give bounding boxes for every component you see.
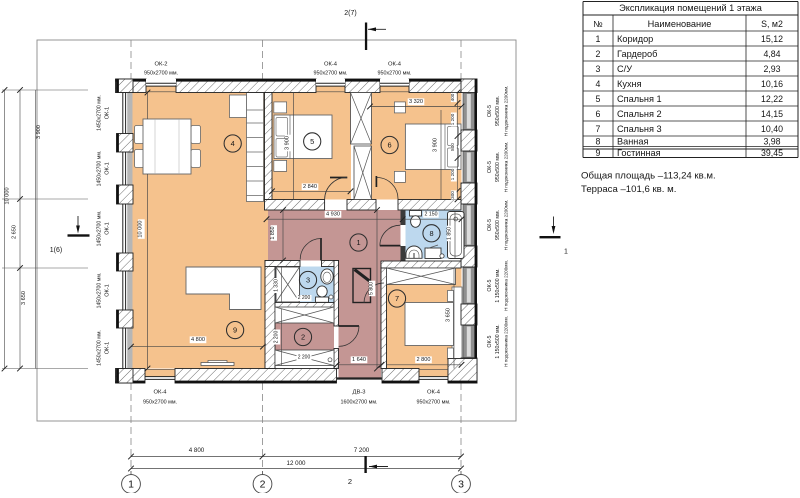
- svg-text:Н подоконника 2200мм.: Н подоконника 2200мм.: [504, 86, 509, 137]
- svg-text:ОК-5: ОК-5: [487, 105, 493, 117]
- svg-text:10 000: 10 000: [138, 220, 144, 237]
- svg-text:3 900: 3 900: [433, 138, 439, 152]
- svg-text:2 200: 2 200: [298, 355, 311, 361]
- svg-text:1 200: 1 200: [450, 113, 455, 125]
- svg-text:2 800: 2 800: [417, 357, 431, 363]
- svg-text:4 800: 4 800: [191, 337, 205, 343]
- svg-text:2: 2: [260, 479, 266, 491]
- svg-text:S, м2: S, м2: [761, 19, 783, 29]
- svg-text:1600х2700 мм.: 1600х2700 мм.: [340, 400, 377, 406]
- svg-text:3: 3: [306, 276, 310, 285]
- svg-text:ОК-4: ОК-4: [153, 390, 167, 396]
- svg-text:3 650: 3 650: [21, 291, 27, 305]
- svg-text:Спальня 2: Спальня 2: [617, 109, 662, 119]
- svg-text:1450х2700 мм.: 1450х2700 мм.: [97, 211, 103, 247]
- svg-text:39,45: 39,45: [761, 148, 783, 158]
- svg-text:5: 5: [596, 94, 601, 104]
- svg-text:9: 9: [596, 148, 601, 158]
- svg-text:Спальня 3: Спальня 3: [617, 124, 662, 134]
- svg-text:№: №: [593, 19, 602, 29]
- svg-text:Спальня 1: Спальня 1: [617, 94, 662, 104]
- svg-text:ОК-1: ОК-1: [105, 284, 111, 297]
- svg-text:9: 9: [233, 326, 237, 335]
- svg-text:4 800: 4 800: [189, 447, 205, 454]
- svg-text:2: 2: [596, 49, 601, 59]
- svg-text:2 840: 2 840: [303, 184, 317, 190]
- svg-text:Н подоконника 2200мм.: Н подоконника 2200мм.: [504, 316, 509, 367]
- svg-text:15,12: 15,12: [761, 34, 783, 44]
- svg-text:3 900: 3 900: [36, 125, 42, 139]
- svg-text:1(6): 1(6): [50, 247, 62, 254]
- svg-text:ОК-2: ОК-2: [154, 62, 167, 68]
- svg-text:400: 400: [450, 93, 455, 101]
- svg-text:4 930: 4 930: [326, 212, 340, 218]
- svg-text:5: 5: [310, 137, 314, 146]
- svg-text:14,15: 14,15: [761, 109, 783, 119]
- svg-text:3 900: 3 900: [285, 136, 291, 150]
- svg-text:300: 300: [450, 191, 455, 199]
- svg-text:1: 1: [356, 238, 360, 247]
- svg-text:3 650: 3 650: [446, 308, 452, 322]
- svg-text:1450х2700 мм.: 1450х2700 мм.: [97, 95, 103, 131]
- svg-text:1 850: 1 850: [446, 227, 452, 240]
- svg-text:ОК-4: ОК-4: [388, 62, 402, 68]
- svg-text:800: 800: [450, 143, 455, 151]
- svg-text:7: 7: [596, 124, 601, 134]
- svg-text:950х2700 мм.: 950х2700 мм.: [377, 71, 411, 77]
- svg-text:10,40: 10,40: [761, 124, 783, 134]
- svg-text:3: 3: [458, 479, 464, 491]
- svg-text:ОК-5: ОК-5: [487, 279, 493, 291]
- svg-text:Н подоконника 2200мм.: Н подоконника 2200мм.: [504, 142, 509, 193]
- svg-text:1 200: 1 200: [450, 168, 455, 180]
- svg-text:2: 2: [301, 333, 305, 342]
- svg-text:2,93: 2,93: [763, 64, 780, 74]
- svg-text:950х2700 мм.: 950х2700 мм.: [313, 71, 347, 77]
- svg-text:6: 6: [596, 109, 601, 119]
- svg-text:4: 4: [231, 139, 235, 148]
- svg-text:7: 7: [395, 294, 399, 303]
- svg-text:2 200: 2 200: [298, 295, 311, 301]
- svg-text:2 150: 2 150: [425, 212, 438, 218]
- svg-text:10 000: 10 000: [5, 187, 11, 204]
- svg-text:8: 8: [596, 137, 601, 147]
- svg-text:Экспликация помещений 1 этажа: Экспликация помещений 1 этажа: [619, 3, 763, 13]
- svg-text:ДВ-3: ДВ-3: [353, 390, 366, 396]
- svg-text:3: 3: [596, 64, 601, 74]
- svg-text:7 200: 7 200: [354, 447, 370, 454]
- svg-text:6: 6: [388, 141, 392, 150]
- svg-text:Кухня: Кухня: [617, 79, 642, 89]
- svg-text:ОК-5: ОК-5: [487, 161, 493, 173]
- svg-text:8: 8: [429, 229, 433, 238]
- svg-text:Общая площадь –113,24 кв.м.: Общая площадь –113,24 кв.м.: [581, 171, 716, 182]
- svg-text:2 200: 2 200: [273, 331, 279, 344]
- svg-text:Н подоконника 2200мм.: Н подоконника 2200мм.: [504, 260, 509, 311]
- svg-text:1: 1: [564, 249, 568, 256]
- svg-text:4: 4: [596, 79, 601, 89]
- svg-text:Ванная: Ванная: [617, 137, 648, 147]
- svg-text:1450х2700 мм.: 1450х2700 мм.: [97, 273, 103, 309]
- svg-text:Терраса –101,6 кв. м.: Терраса –101,6 кв. м.: [581, 184, 676, 195]
- svg-text:ОК-1: ОК-1: [105, 222, 111, 235]
- svg-text:2: 2: [348, 477, 352, 486]
- svg-text:ОК-1: ОК-1: [105, 342, 111, 355]
- svg-text:ОК-1: ОК-1: [105, 107, 111, 120]
- svg-text:10,16: 10,16: [761, 79, 783, 89]
- svg-text:950х2700 мм.: 950х2700 мм.: [144, 71, 178, 77]
- svg-text:1 150х500 мм.: 1 150х500 мм.: [495, 324, 501, 358]
- svg-text:ОК-1: ОК-1: [105, 162, 111, 175]
- svg-text:12,22: 12,22: [761, 94, 783, 104]
- svg-text:ОК-5: ОК-5: [487, 219, 493, 231]
- svg-text:Наименование: Наименование: [648, 19, 712, 29]
- svg-text:950х500 мм.: 950х500 мм.: [495, 152, 501, 182]
- svg-text:1450х2700 мм.: 1450х2700 мм.: [97, 330, 103, 366]
- svg-text:1: 1: [596, 34, 601, 44]
- svg-text:ОК-4: ОК-4: [427, 390, 441, 396]
- svg-text:950х2700 мм.: 950х2700 мм.: [143, 400, 177, 406]
- svg-text:5 800: 5 800: [368, 282, 374, 295]
- svg-text:Гостинная: Гостинная: [617, 148, 661, 158]
- svg-text:Н подоконника 2200мм.: Н подоконника 2200мм.: [504, 200, 509, 251]
- svg-text:950х2700 мм.: 950х2700 мм.: [416, 400, 450, 406]
- svg-text:Коридор: Коридор: [617, 34, 653, 44]
- svg-text:Гардероб: Гардероб: [617, 49, 657, 59]
- svg-text:950х500 мм.: 950х500 мм.: [495, 96, 501, 126]
- svg-text:С/У: С/У: [617, 64, 632, 74]
- svg-text:4,84: 4,84: [763, 49, 780, 59]
- svg-text:2(7): 2(7): [344, 10, 356, 17]
- svg-text:950х500 мм.: 950х500 мм.: [495, 210, 501, 240]
- svg-text:ОК-4: ОК-4: [324, 62, 338, 68]
- svg-text:2 650: 2 650: [12, 225, 18, 239]
- svg-text:3 320: 3 320: [409, 99, 423, 105]
- svg-text:12 000: 12 000: [287, 460, 306, 467]
- svg-text:ОК-5: ОК-5: [487, 335, 493, 347]
- svg-text:1 150х500 мм.: 1 150х500 мм.: [495, 268, 501, 302]
- svg-text:1 640: 1 640: [352, 357, 366, 363]
- svg-text:3,98: 3,98: [763, 137, 780, 147]
- svg-text:1 330: 1 330: [273, 279, 279, 292]
- svg-text:1 850: 1 850: [270, 226, 276, 239]
- svg-text:1450х2700 мм.: 1450х2700 мм.: [97, 151, 103, 187]
- svg-text:1: 1: [128, 479, 134, 491]
